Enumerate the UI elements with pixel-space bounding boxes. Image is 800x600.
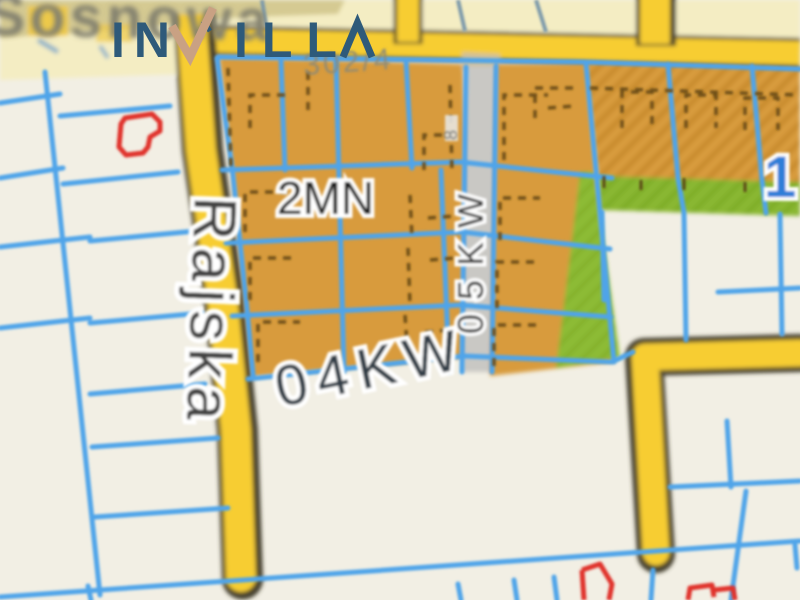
svg-text:ILL: ILL [234,12,351,68]
svg-text:1: 1 [764,145,796,210]
svg-text:2MN: 2MN [277,172,374,224]
svg-text:Rajska: Rajska [174,196,249,430]
svg-text:8: 8 [441,130,461,140]
svg-text:05KW: 05KW [450,180,491,334]
svg-text:IN: IN [111,12,179,68]
